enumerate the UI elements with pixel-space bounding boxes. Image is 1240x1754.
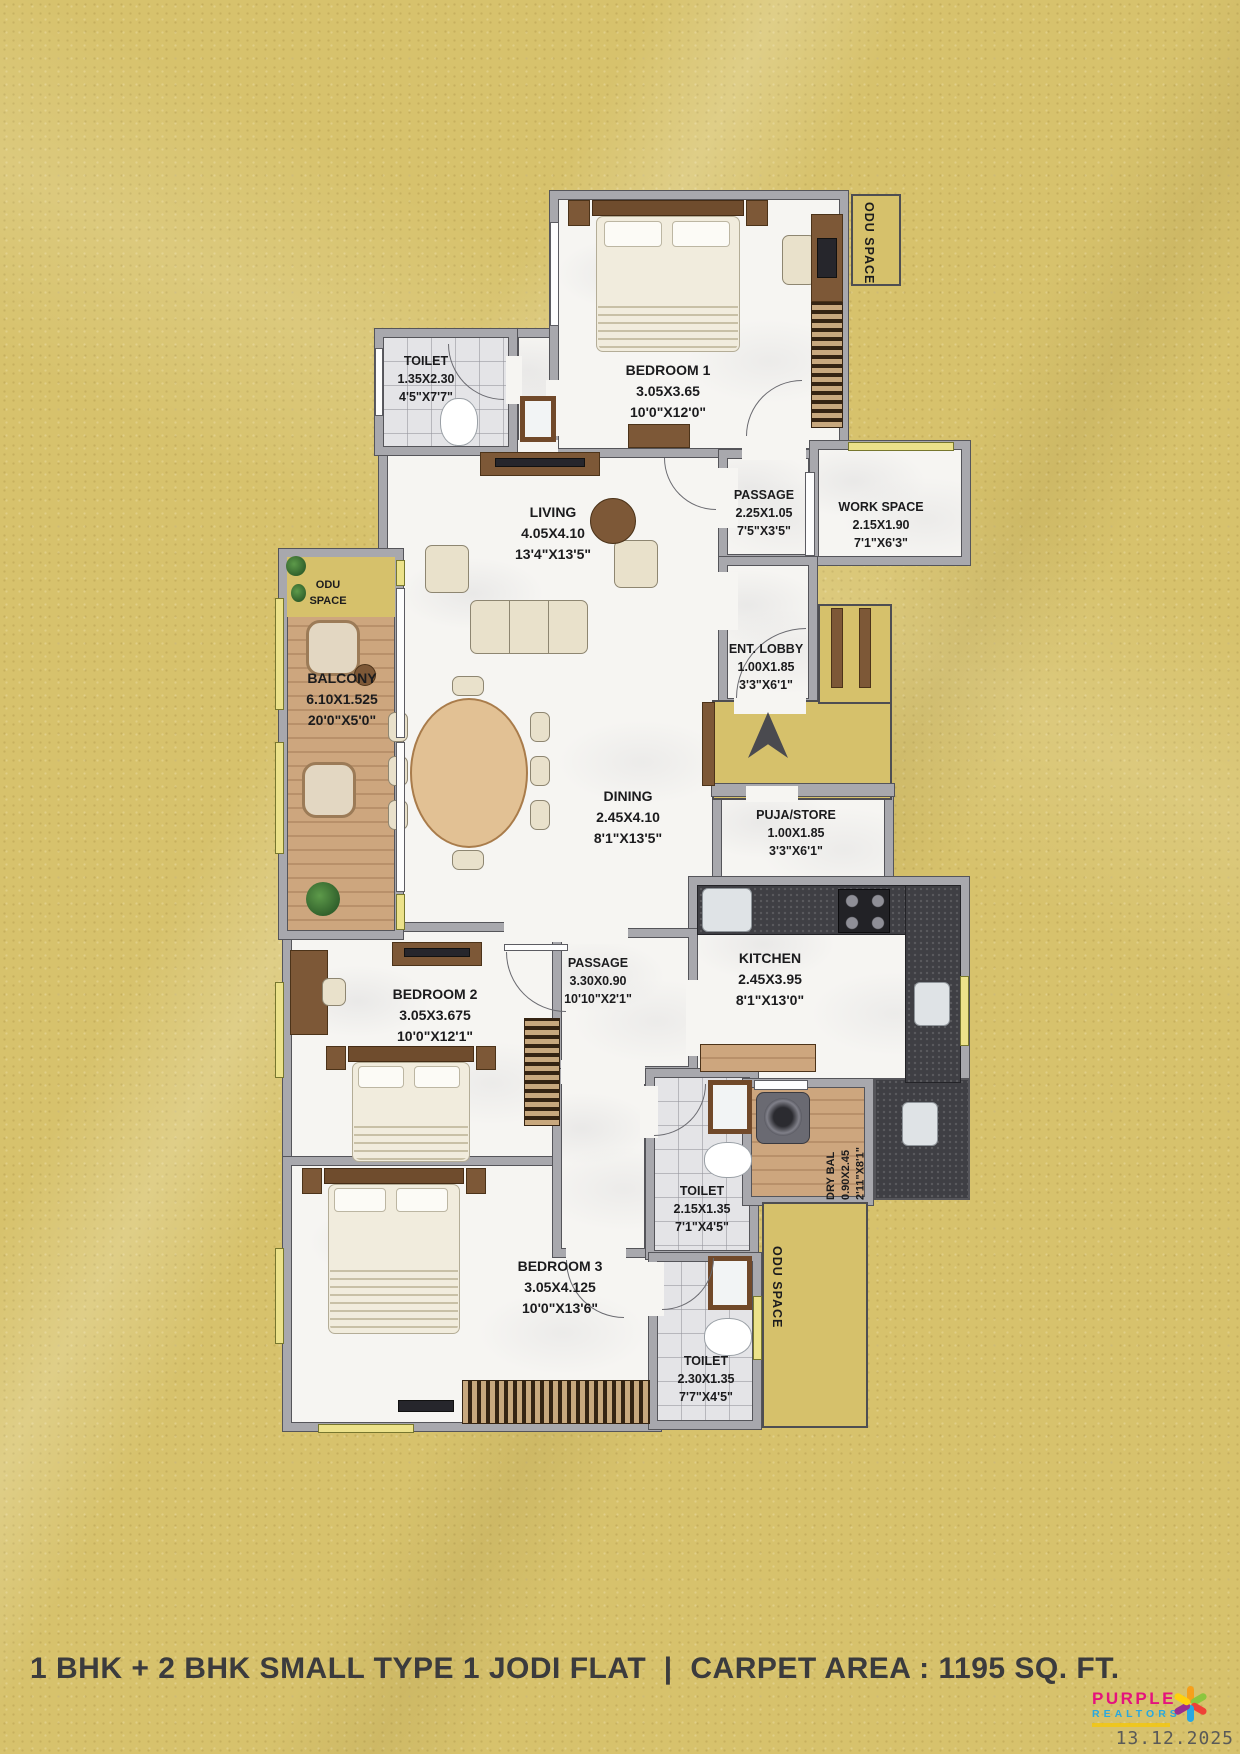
odu-space-box-top-right [851,194,901,286]
living-armchair-left [425,545,469,593]
window-kitchen [960,976,969,1046]
opening-bedroom1-passage [742,436,806,460]
dining-table [410,698,528,848]
room-label-toilet-top: TOILET 1.35X2.30 4'5"X7'7" [374,352,478,406]
vestibule-bottom-wall [712,784,894,796]
room-dim-ft: 8'1"X13'0" [690,990,850,1011]
bedroom3-side-table-left [302,1168,322,1194]
room-dim-ft: 20'0"X5'0" [290,710,394,731]
room-label-kitchen: KITCHEN 2.45X3.95 8'1"X13'0" [690,948,850,1011]
bedroom3-wardrobe [462,1380,650,1424]
bedroom1-duvet-stripes [598,300,738,350]
room-dim-ft: 10'0"X13'6" [470,1298,650,1319]
toilet-mid-vanity [708,1080,752,1134]
room-dim-m: 2.45X4.10 [558,807,698,828]
odu-space-label-top-right: ODU SPACE [862,202,876,282]
door-leaf-bedroom2 [504,944,568,951]
odu-space-label-bottom-right: ODU SPACE [770,1246,784,1376]
room-dim-m: 2.25X1.05 [706,504,822,522]
bedroom1-pillow-left [604,221,662,247]
plan-caption: 1 BHK + 2 BHK SMALL TYPE 1 JODI FLAT | C… [30,1652,1092,1686]
room-dim-m: 1.00X1.85 [722,824,870,842]
bedroom3-pillow-right [396,1188,448,1212]
window-balcony-living-top [396,560,405,586]
window-work-space [848,442,954,451]
room-dim-m: 4.05X4.10 [473,523,633,544]
room-label-bedroom1: BEDROOM 1 3.05X3.65 10'0"X12'0" [568,360,768,423]
window-bedroom2 [275,982,284,1078]
room-label-living: LIVING 4.05X4.10 13'4"X13'5" [473,502,633,565]
room-dim-ft: 3'3"X6'1" [722,842,870,860]
utility-sink [902,1102,938,1146]
kitchen-stove [838,889,890,933]
floor-plan-page: BEDROOM 1 3.05X3.65 10'0"X12'0" TOILET 1… [0,0,1240,1754]
opening-bedroom2-door [504,920,572,942]
toilet-bottom-wc [704,1318,752,1356]
room-dim-m: 2.15X1.90 [808,516,954,534]
logo-tagline-bar [1092,1723,1170,1727]
room-label-toilet-bottom: TOILET 2.30X1.35 7'7"X4'5" [654,1352,758,1406]
room-passage-mid-lower [552,1068,654,1258]
opening-living-lobby [718,572,738,630]
room-dim-ft: 10'0"X12'0" [568,402,768,423]
window-bedroom1 [550,222,559,326]
bedroom3-side-table-right [466,1168,486,1194]
logo-name-bottom: REALTORS [1092,1707,1181,1723]
living-sofa [470,600,588,654]
logo-name-top: PURPLE [1092,1690,1181,1707]
bedroom1-headboard [592,200,744,216]
room-label-balcony: BALCONY 6.10X1.525 20'0"X5'0" [290,668,394,731]
balcony-chair-2 [302,762,356,818]
bedroom2-tv [404,948,470,957]
bedroom3-duvet-stripes [330,1264,458,1332]
room-dim-m: 2.45X3.95 [690,969,850,990]
room-name: BEDROOM 2 [335,984,535,1005]
room-label-puja-store: PUJA/STORE 1.00X1.85 3'3"X6'1" [722,806,870,860]
balcony-plant-top [286,556,306,576]
room-dim-m: 3.05X3.65 [568,381,768,402]
room-dim-ft: 7'1"X4'5" [650,1218,754,1236]
room-name: ENT. LOBBY [700,640,832,658]
room-dim-m: 6.10X1.525 [290,689,394,710]
room-name: WORK SPACE [808,498,954,516]
bedroom2-pillow-left [358,1066,404,1088]
room-dim-ft: 3'3"X6'1" [700,676,832,694]
odu-space-label-balcony: ODU SPACE [298,578,358,610]
room-name: TOILET [650,1182,754,1200]
room-name: TOILET [654,1352,758,1370]
room-dim-m: 3.30X0.90 [538,972,658,990]
entry-nook-door-leaf-2 [859,608,871,688]
room-name: KITCHEN [690,948,850,969]
room-dim-ft: 8'1"X13'5" [558,828,698,849]
bedroom2-side-table-left [326,1046,346,1070]
bedroom1-side-table-left [568,200,590,226]
window-bedroom3-left [275,1248,284,1344]
bedroom3-tv-unit [398,1400,454,1412]
dining-chair-r3 [530,800,550,830]
room-name: PASSAGE [538,954,658,972]
dining-chair-r2 [530,756,550,786]
bedroom1-pillow-right [672,221,730,247]
window-bedroom3-bottom [318,1424,414,1433]
room-label-passage-mid: PASSAGE 3.30X0.90 10'10"X2'1" [538,954,658,1008]
opening-lobby-vestibule [734,696,806,714]
slider-balcony-living-1 [396,588,405,738]
window-toilet-bottom [753,1296,762,1360]
room-label-dining: DINING 2.45X4.10 8'1"X13'5" [558,786,698,849]
window-balcony-2 [275,742,284,854]
bedroom2-duvet-stripes [354,1120,468,1160]
room-dim-m: 0.90X2.45 [839,1086,854,1200]
main-door-leaf [702,702,715,786]
room-label-work-space: WORK SPACE 2.15X1.90 7'1"X6'3" [808,498,954,552]
room-label-passage-top: PASSAGE 2.25X1.05 7'5"X3'5" [706,486,822,540]
opening-vestibule-puja [746,786,798,802]
room-label-ent-lobby: ENT. LOBBY 1.00X1.85 3'3"X6'1" [700,640,832,694]
bedroom1-dresser [628,424,690,448]
passage-junction-patch [561,1060,645,1084]
room-name: LIVING [473,502,633,523]
toilet-mid-wc [704,1142,752,1178]
room-dim-m: 2.15X1.35 [650,1200,754,1218]
room-dim-ft: 7'5"X3'5" [706,522,822,540]
room-dim-m: 2.30X1.35 [654,1370,758,1388]
realtor-logo: PURPLE REALTORS [1092,1690,1181,1727]
slider-kitchen-drybal [754,1080,808,1090]
window-balcony-living-bottom [396,894,405,930]
room-label-bedroom2: BEDROOM 2 3.05X3.675 10'0"X12'1" [335,984,535,1047]
room-dim-m: 1.35X2.30 [374,370,478,388]
kitchen-fridge [702,888,752,932]
logo-starburst-icon [1170,1684,1210,1724]
bedroom3-pillow-left [334,1188,386,1212]
kitchen-sink [914,982,950,1026]
room-dim-ft: 2'11"X8'1" [854,1086,869,1200]
kitchen-counter-bottom [700,1044,816,1072]
room-dim-m: 1.00X1.85 [700,658,832,676]
bedroom2-headboard [348,1046,474,1062]
room-name: TOILET [374,352,478,370]
dining-chair-bottom [452,850,484,870]
toilet-bottom-vanity [708,1256,752,1310]
entry-nook-door-leaf-1 [831,608,843,688]
dining-chair-top [452,676,484,696]
dining-chair-r1 [530,712,550,742]
bedroom1-side-table-right [746,200,768,226]
vestibule-vanity [520,396,556,442]
opening-living-passage-mid [572,924,628,944]
room-label-dry-bal: DRY BAL 0.90X2.45 2'11"X8'1" [824,1086,869,1200]
room-label-toilet-mid: TOILET 2.15X1.35 7'1"X4'5" [650,1182,754,1236]
bedroom3-headboard [324,1168,464,1184]
bedroom1-ac-unit [817,238,837,278]
window-balcony-1 [275,598,284,710]
room-name: PUJA/STORE [722,806,870,824]
room-name: PASSAGE [706,486,822,504]
room-dim-ft: 4'5"X7'7" [374,388,478,406]
room-name: DRY BAL [824,1086,839,1200]
room-dim-ft: 7'1"X6'3" [808,534,954,552]
room-dim-ft: 10'0"X12'1" [335,1026,535,1047]
balcony-plant-bottom [306,882,340,916]
living-tv [495,458,585,467]
room-name: BALCONY [290,668,394,689]
room-dim-ft: 13'4"X13'5" [473,544,633,565]
slider-balcony-living-2 [396,742,405,892]
room-dim-ft: 10'10"X2'1" [538,990,658,1008]
washing-machine-drum [764,1098,802,1136]
room-name: BEDROOM 3 [470,1256,650,1277]
room-dim-m: 3.05X4.125 [470,1277,650,1298]
room-dim-ft: 7'7"X4'5" [654,1388,758,1406]
room-label-bedroom3: BEDROOM 3 3.05X4.125 10'0"X13'6" [470,1256,650,1319]
plan-date: 13.12.2025 [1088,1728,1234,1749]
bedroom1-wardrobe [811,302,843,428]
bedroom2-pillow-right [414,1066,460,1088]
room-name: DINING [558,786,698,807]
room-dim-m: 3.05X3.675 [335,1005,535,1026]
bedroom2-side-table-right [476,1046,496,1070]
room-name: BEDROOM 1 [568,360,768,381]
